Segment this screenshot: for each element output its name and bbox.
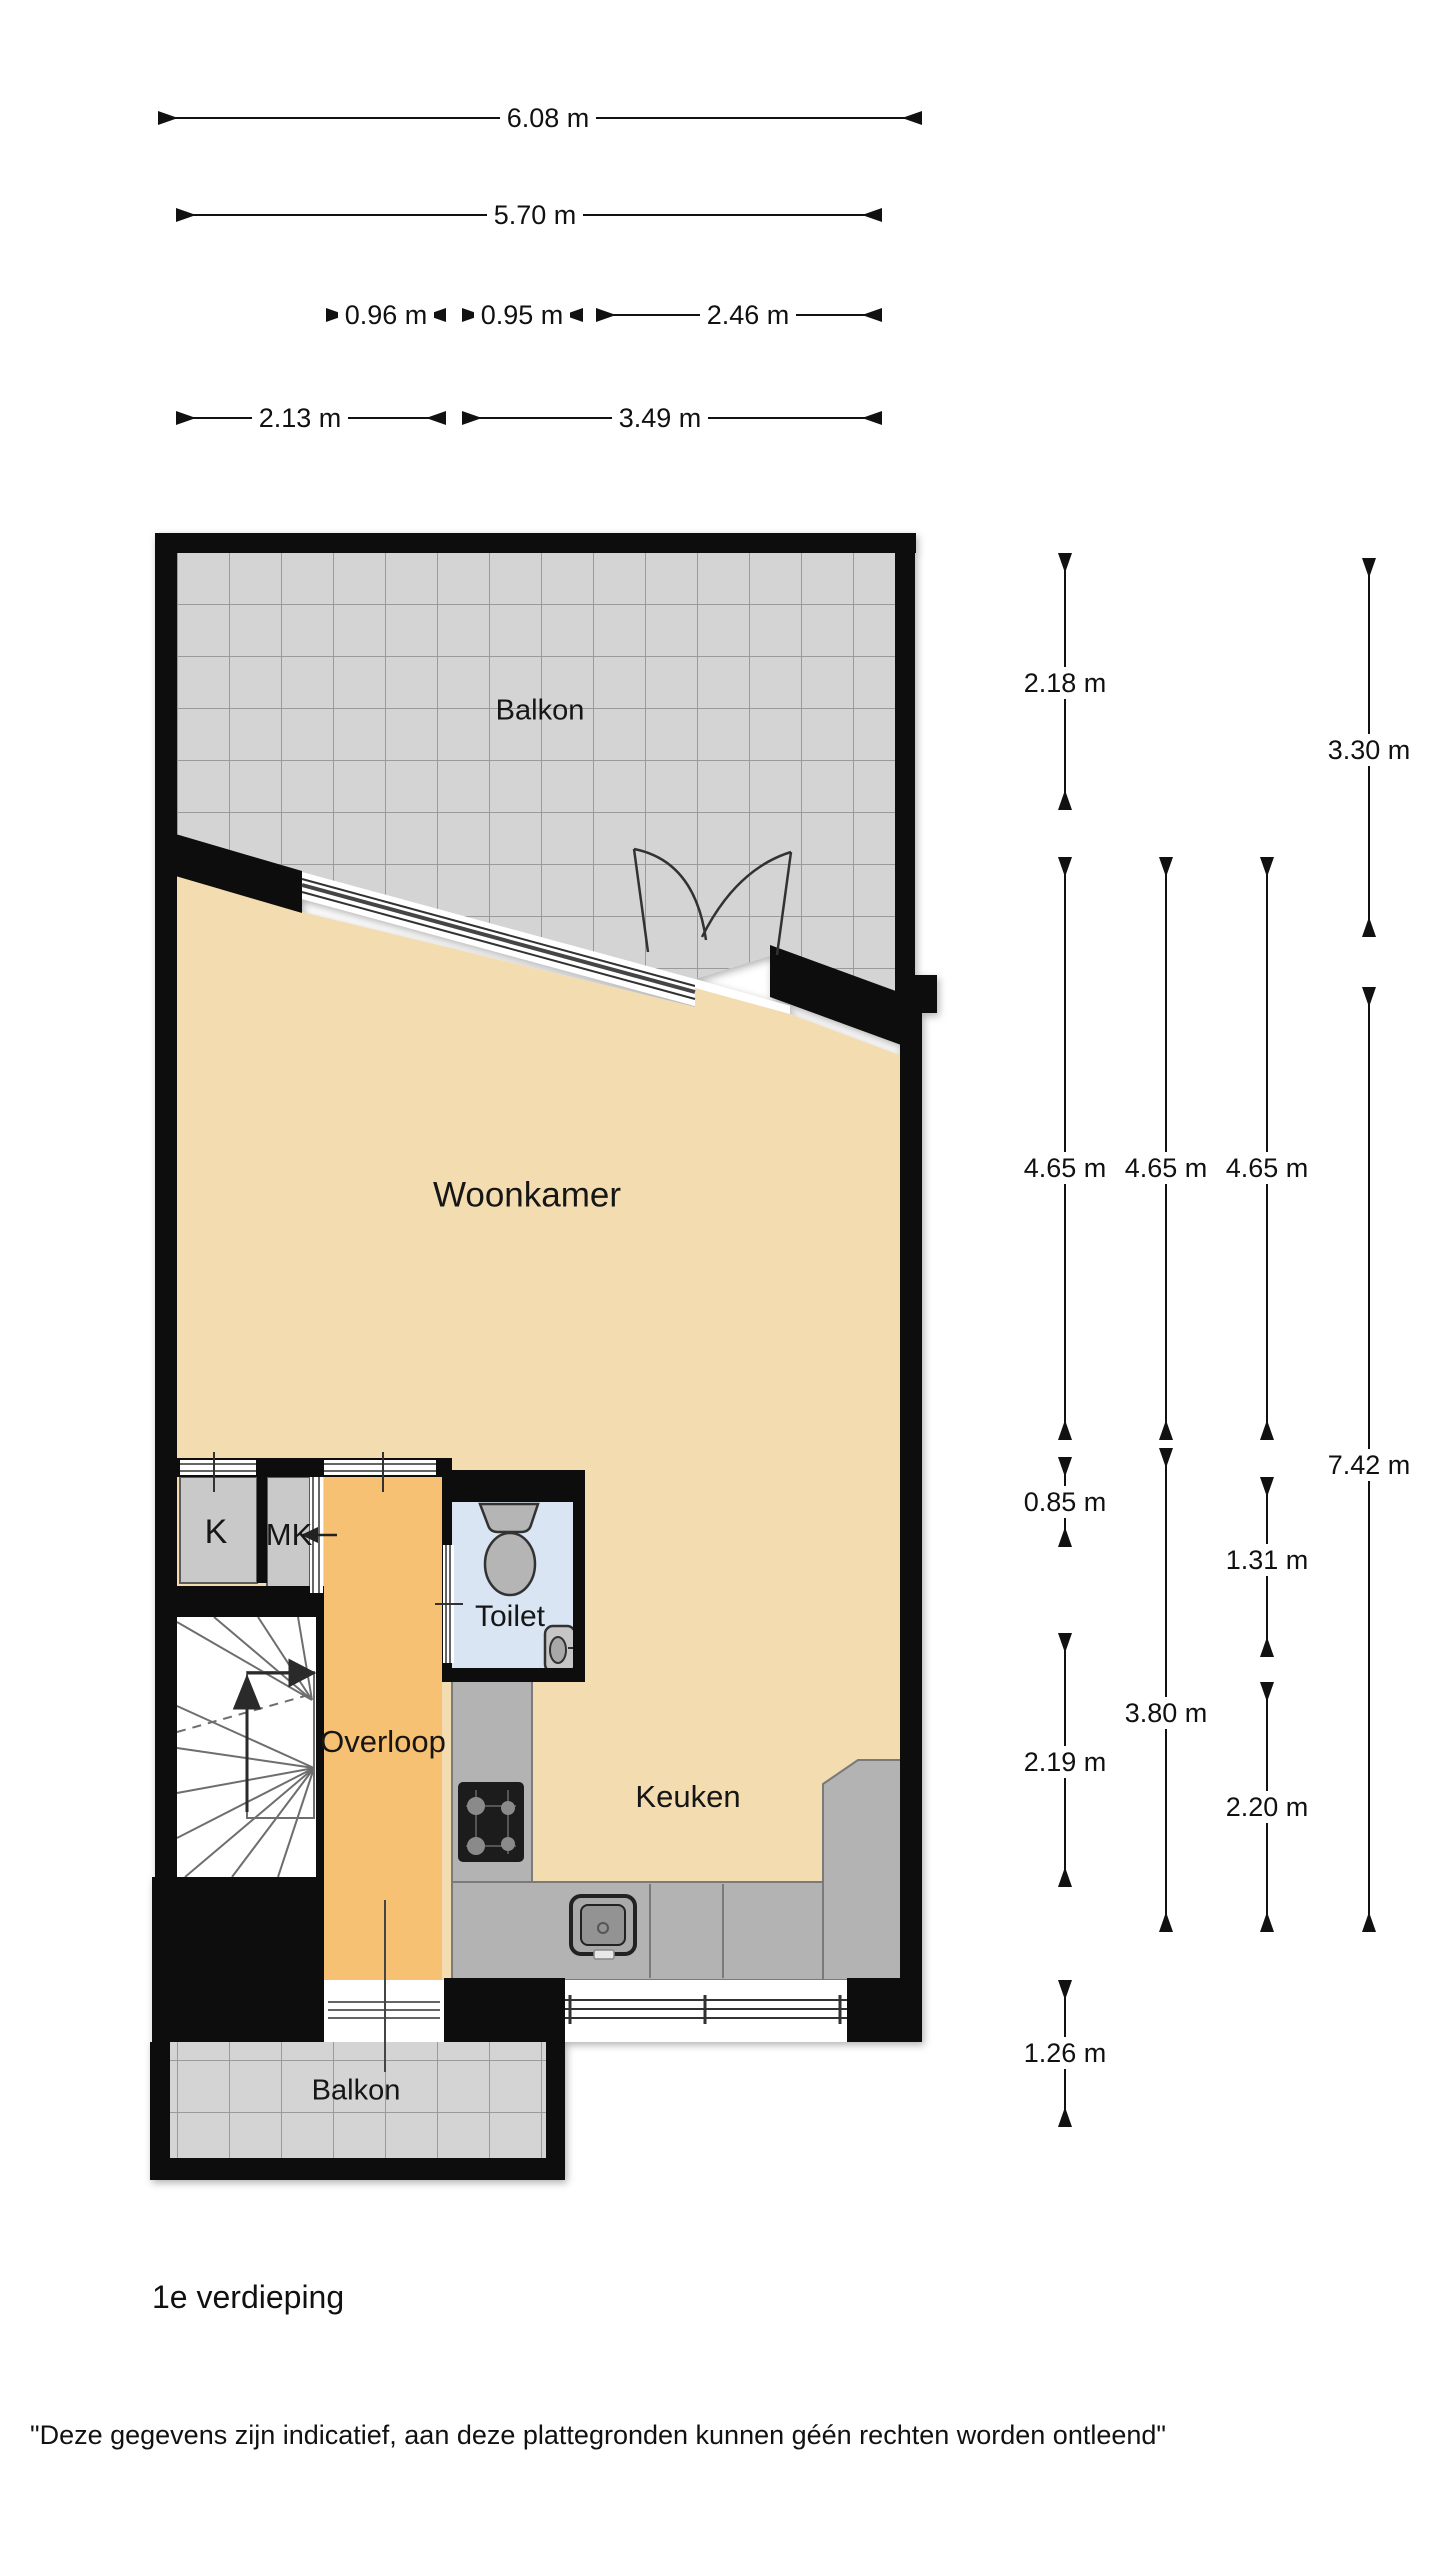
floorplan-page: { "title": "1e verdieping", "disclaimer"… [0,0,1440,2560]
dimension-label: 2.18 m [1024,668,1107,698]
cooktop-icon [458,1782,524,1862]
room-label-balkon-top: Balkon [496,695,585,727]
floor-title: 1e verdieping [152,2279,344,2315]
room-label-k: K [205,1513,228,1551]
room-label-mk: MK [266,1517,313,1552]
dimension-label: 3.80 m [1125,1698,1208,1728]
floorplan-canvas: Balkon Woonkamer K MK Toilet Overloop Ke… [0,0,1440,2560]
room-label-woonkamer: Woonkamer [433,1175,621,1214]
dimension-label: 4.65 m [1024,1153,1107,1183]
room-label-overloop: Overloop [320,1724,446,1759]
dimension-label: 3.30 m [1328,735,1411,765]
dimension-label: 4.65 m [1226,1153,1309,1183]
toilet-sink-icon [545,1626,575,1672]
disclaimer-text: "Deze gegevens zijn indicatief, aan deze… [30,2420,1166,2450]
dimension-label: 6.08 m [507,103,590,133]
dimension-label: 0.96 m [345,300,428,330]
dimension-label: 5.70 m [494,200,577,230]
dimension-label: 2.20 m [1226,1792,1309,1822]
stairs-icon [177,1617,316,1877]
dimension-label: 0.85 m [1024,1487,1107,1517]
dimension-label: 2.46 m [707,300,790,330]
room-label-keuken: Keuken [635,1779,740,1814]
dimension-label: 7.42 m [1328,1450,1411,1480]
toilet-room [452,1502,575,1672]
dimension-label: 0.95 m [481,300,564,330]
dimension-label: 1.31 m [1226,1545,1309,1575]
room-label-toilet: Toilet [475,1600,546,1633]
kitchen-sink-icon [571,1896,635,1959]
dimension-label: 3.49 m [619,403,702,433]
dimension-label: 1.26 m [1024,2038,1107,2068]
dimension-label: 2.13 m [259,403,342,433]
dimension-label: 2.19 m [1024,1747,1107,1777]
floorplan: Balkon Woonkamer K MK Toilet Overloop Ke… [150,533,937,2180]
toilet-icon [480,1504,538,1595]
dimension-label: 4.65 m [1125,1153,1208,1183]
room-label-balkon-bottom: Balkon [312,2075,401,2107]
